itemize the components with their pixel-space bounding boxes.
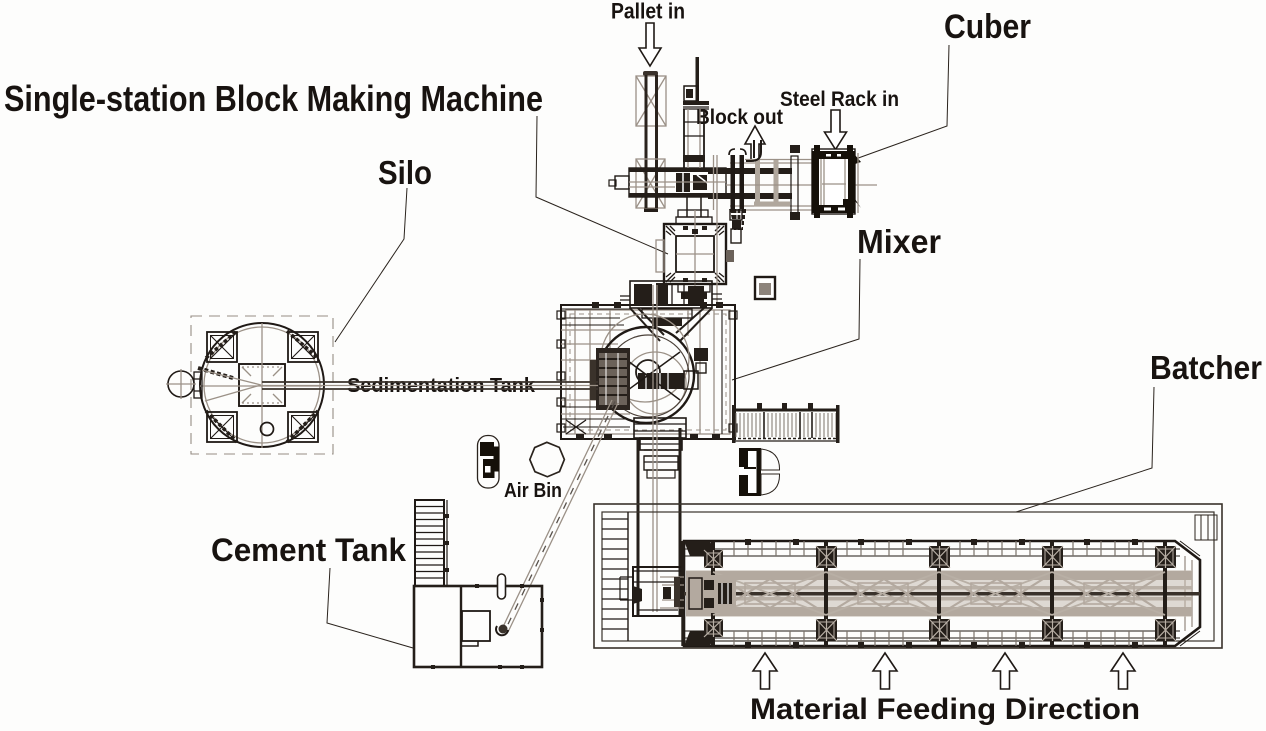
svg-text:Pallet in: Pallet in (611, 0, 685, 24)
svg-text:Batcher: Batcher (1150, 349, 1262, 386)
svg-text:Silo: Silo (378, 154, 432, 191)
svg-text:Single-station Block Making Ma: Single-station Block Making Machine (4, 78, 543, 119)
svg-text:Steel Rack in: Steel Rack in (780, 88, 899, 111)
svg-text:Block out: Block out (696, 106, 783, 129)
svg-text:Material Feeding Direction: Material Feeding Direction (750, 693, 1140, 726)
svg-text:Cuber: Cuber (944, 8, 1031, 46)
svg-text:Air Bin: Air Bin (504, 480, 562, 502)
svg-text:Mixer: Mixer (857, 223, 941, 260)
svg-text:Cement Tank: Cement Tank (211, 532, 406, 568)
